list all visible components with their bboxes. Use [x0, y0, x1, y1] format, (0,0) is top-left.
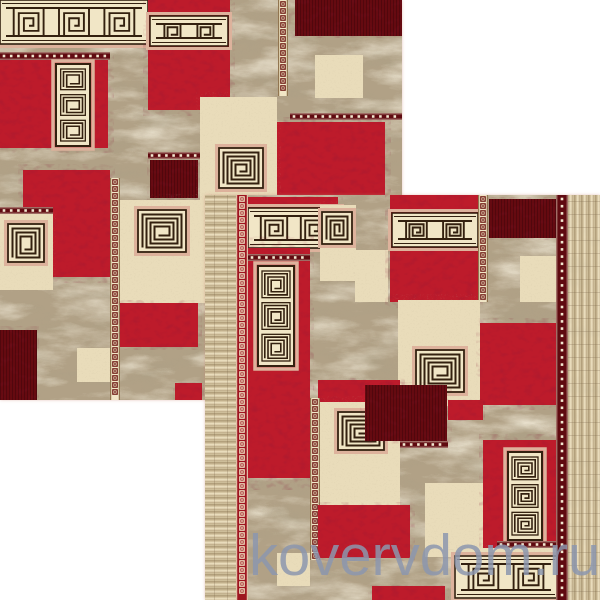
cream-block [520, 256, 557, 302]
border-fringe [205, 195, 236, 600]
red-block [120, 303, 198, 347]
dark-red-block [150, 160, 198, 198]
dark-red-block [0, 330, 37, 400]
cream-block [277, 553, 310, 586]
guard-stripe-dots [400, 441, 448, 448]
red-block [480, 323, 557, 405]
meander-band [453, 554, 560, 600]
guard-stripe-dots [497, 541, 557, 548]
meander-band [0, 0, 151, 47]
dark-red-block [365, 385, 447, 441]
spiral-medallion-column [255, 263, 297, 369]
red-block [175, 383, 202, 400]
spiral-medallion [217, 146, 266, 191]
red-block [277, 122, 385, 205]
red-block [372, 586, 445, 600]
guard-stripe-dots [290, 113, 402, 120]
red-block [448, 400, 483, 420]
dark-red-block [295, 0, 402, 36]
meander-band [390, 211, 481, 250]
spiral-medallion-column [53, 61, 93, 149]
red-block [318, 505, 410, 558]
guard-stripe-meander [478, 195, 488, 302]
border-fringe [568, 195, 600, 600]
spiral-medallion [6, 222, 47, 265]
guard-stripe-meander [236, 195, 248, 600]
meander-band [148, 14, 231, 49]
spiral-medallion [320, 210, 355, 247]
cream-block [355, 250, 388, 302]
guard-stripe-dots [0, 52, 110, 60]
guard-stripe-dots [148, 152, 208, 159]
product-photo-canvas: kovervdom.ru [0, 0, 600, 600]
carpet-photo-front [205, 195, 600, 600]
cream-block [315, 55, 363, 98]
guard-stripe-dots [556, 195, 568, 600]
guard-stripe-meander [110, 178, 120, 400]
spiral-medallion [136, 208, 189, 255]
guard-stripe-meander [278, 0, 288, 96]
spiral-medallion-column [505, 449, 545, 543]
guard-stripe-dots [248, 254, 310, 261]
cream-block [77, 348, 110, 382]
cream-block [425, 483, 485, 557]
guard-stripe-dots [0, 207, 53, 214]
dark-red-block [489, 199, 557, 238]
